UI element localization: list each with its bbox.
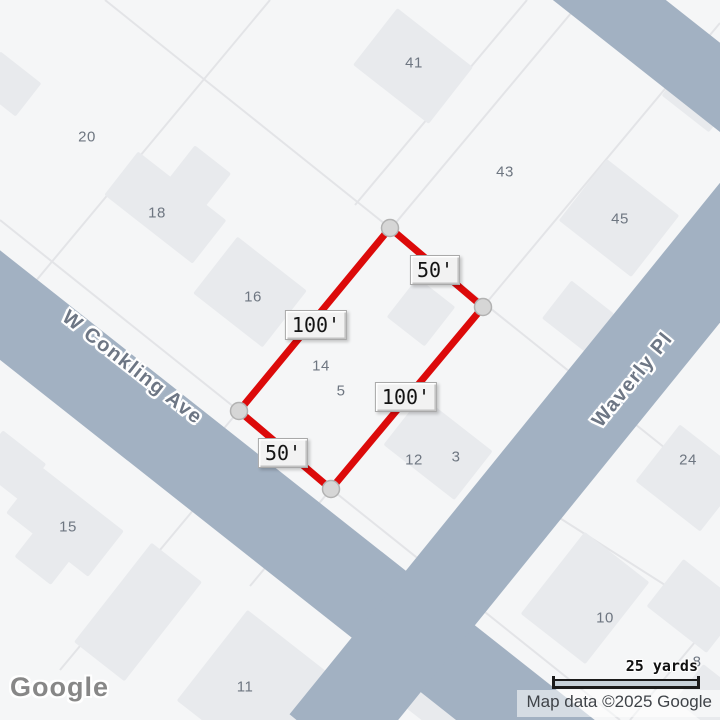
house-number-label: 24 bbox=[679, 452, 697, 469]
house-number-label: 5 bbox=[337, 383, 346, 400]
house-number-label: 43 bbox=[496, 164, 514, 181]
scale-label: 25 yards bbox=[552, 657, 700, 675]
scale-control: 25 yards bbox=[552, 657, 700, 689]
lot-dimension-label: 50' bbox=[258, 438, 308, 468]
house-number-label: 14 bbox=[312, 358, 330, 375]
map-canvas[interactable]: W Conkling Ave Waverly Pl 20181641434514… bbox=[0, 0, 720, 720]
lot-vertex-handle[interactable] bbox=[231, 403, 248, 420]
house-number-label: 12 bbox=[405, 452, 423, 469]
lot-vertex-handle[interactable] bbox=[323, 481, 340, 498]
lot-dimension-label: 50' bbox=[410, 255, 460, 285]
house-number-label: 11 bbox=[237, 679, 254, 696]
house-number-label: 18 bbox=[148, 205, 166, 222]
house-number-label: 20 bbox=[78, 129, 96, 146]
map-attribution: Map data ©2025 Google bbox=[517, 690, 720, 717]
house-number-label: 45 bbox=[611, 211, 629, 228]
house-number-label: 10 bbox=[596, 610, 614, 627]
house-number-label: 41 bbox=[405, 55, 423, 72]
house-number-label: 3 bbox=[452, 449, 461, 466]
scale-bar bbox=[552, 676, 700, 689]
lot-vertex-handle[interactable] bbox=[382, 220, 399, 237]
lot-dimension-label: 100' bbox=[375, 382, 437, 412]
lot-vertex-handle[interactable] bbox=[475, 299, 492, 316]
house-number-label: 15 bbox=[59, 519, 77, 536]
google-logo[interactable]: Google bbox=[10, 672, 109, 703]
scale-bar-fill bbox=[555, 679, 697, 686]
lot-dimension-label: 100' bbox=[285, 310, 347, 340]
house-number-label: 16 bbox=[244, 289, 262, 306]
